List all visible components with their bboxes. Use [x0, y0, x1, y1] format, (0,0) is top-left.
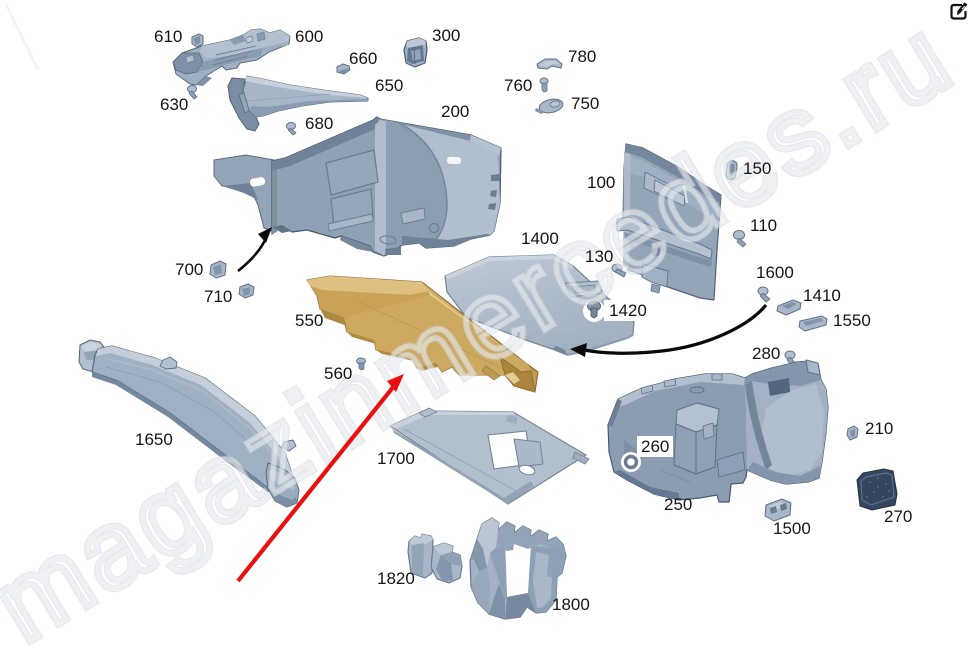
svg-text:1700: 1700	[377, 449, 415, 468]
svg-text:110: 110	[750, 216, 777, 235]
svg-text:1800: 1800	[552, 595, 590, 614]
svg-text:300: 300	[432, 26, 460, 45]
svg-text:280: 280	[752, 344, 780, 363]
svg-text:1410: 1410	[803, 286, 841, 305]
svg-text:100: 100	[587, 173, 615, 192]
svg-text:610: 610	[154, 27, 182, 46]
svg-text:1600: 1600	[756, 263, 794, 282]
svg-text:250: 250	[664, 495, 692, 514]
svg-text:1820: 1820	[377, 569, 415, 588]
svg-text:600: 600	[295, 27, 323, 46]
svg-text:650: 650	[375, 76, 403, 95]
svg-text:210: 210	[865, 419, 893, 438]
svg-text:760: 760	[504, 76, 532, 95]
svg-text:550: 550	[295, 311, 323, 330]
svg-text:270: 270	[884, 507, 912, 526]
svg-text:660: 660	[349, 49, 377, 68]
svg-text:150: 150	[743, 159, 771, 178]
svg-text:700: 700	[175, 260, 203, 279]
svg-text:130: 130	[585, 247, 613, 266]
svg-text:1500: 1500	[773, 519, 811, 538]
svg-text:1400: 1400	[521, 229, 559, 248]
svg-text:200: 200	[441, 102, 469, 121]
svg-text:560: 560	[324, 364, 352, 383]
svg-text:1550: 1550	[833, 311, 871, 330]
svg-text:1420: 1420	[609, 301, 647, 320]
svg-text:680: 680	[305, 114, 333, 133]
svg-text:780: 780	[568, 47, 596, 66]
svg-text:750: 750	[571, 94, 599, 113]
svg-text:1650: 1650	[135, 430, 173, 449]
svg-text:260: 260	[641, 437, 669, 456]
svg-text:630: 630	[160, 95, 188, 114]
svg-text:710: 710	[204, 287, 232, 306]
